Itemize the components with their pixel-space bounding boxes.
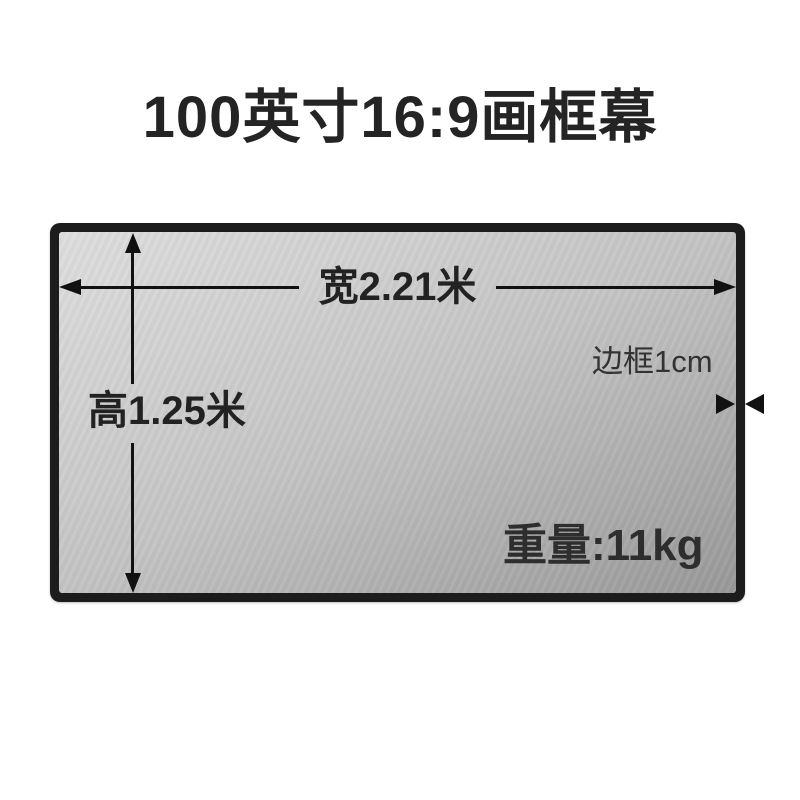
width-dimension-arrow: 宽2.21米 [59,266,736,308]
weight-label: 重量:11kg [503,521,704,571]
frame-thickness-arrow-outer-icon [745,394,764,414]
width-dimension-line [496,286,714,289]
height-dimension-line [131,251,134,384]
arrowhead-down-icon [125,573,141,593]
height-dimension-label: 高1.25米 [88,387,246,435]
frame-thickness-label: 边框1cm [592,344,713,380]
page-title: 100英寸16:9画框幕 [0,86,800,150]
screen-frame: 宽2.21米 高1.25米 边框1cm 重量:11kg [50,223,745,602]
arrowhead-left-icon [59,279,81,295]
height-dimension-line [131,443,134,574]
width-dimension-label: 宽2.21米 [319,266,477,308]
frame-thickness-arrow-inner-icon [716,394,735,414]
screen-surface: 宽2.21米 高1.25米 边框1cm 重量:11kg [59,232,736,593]
arrowhead-right-icon [714,279,736,295]
arrowhead-up-icon [125,233,141,253]
width-dimension-line [81,286,299,289]
